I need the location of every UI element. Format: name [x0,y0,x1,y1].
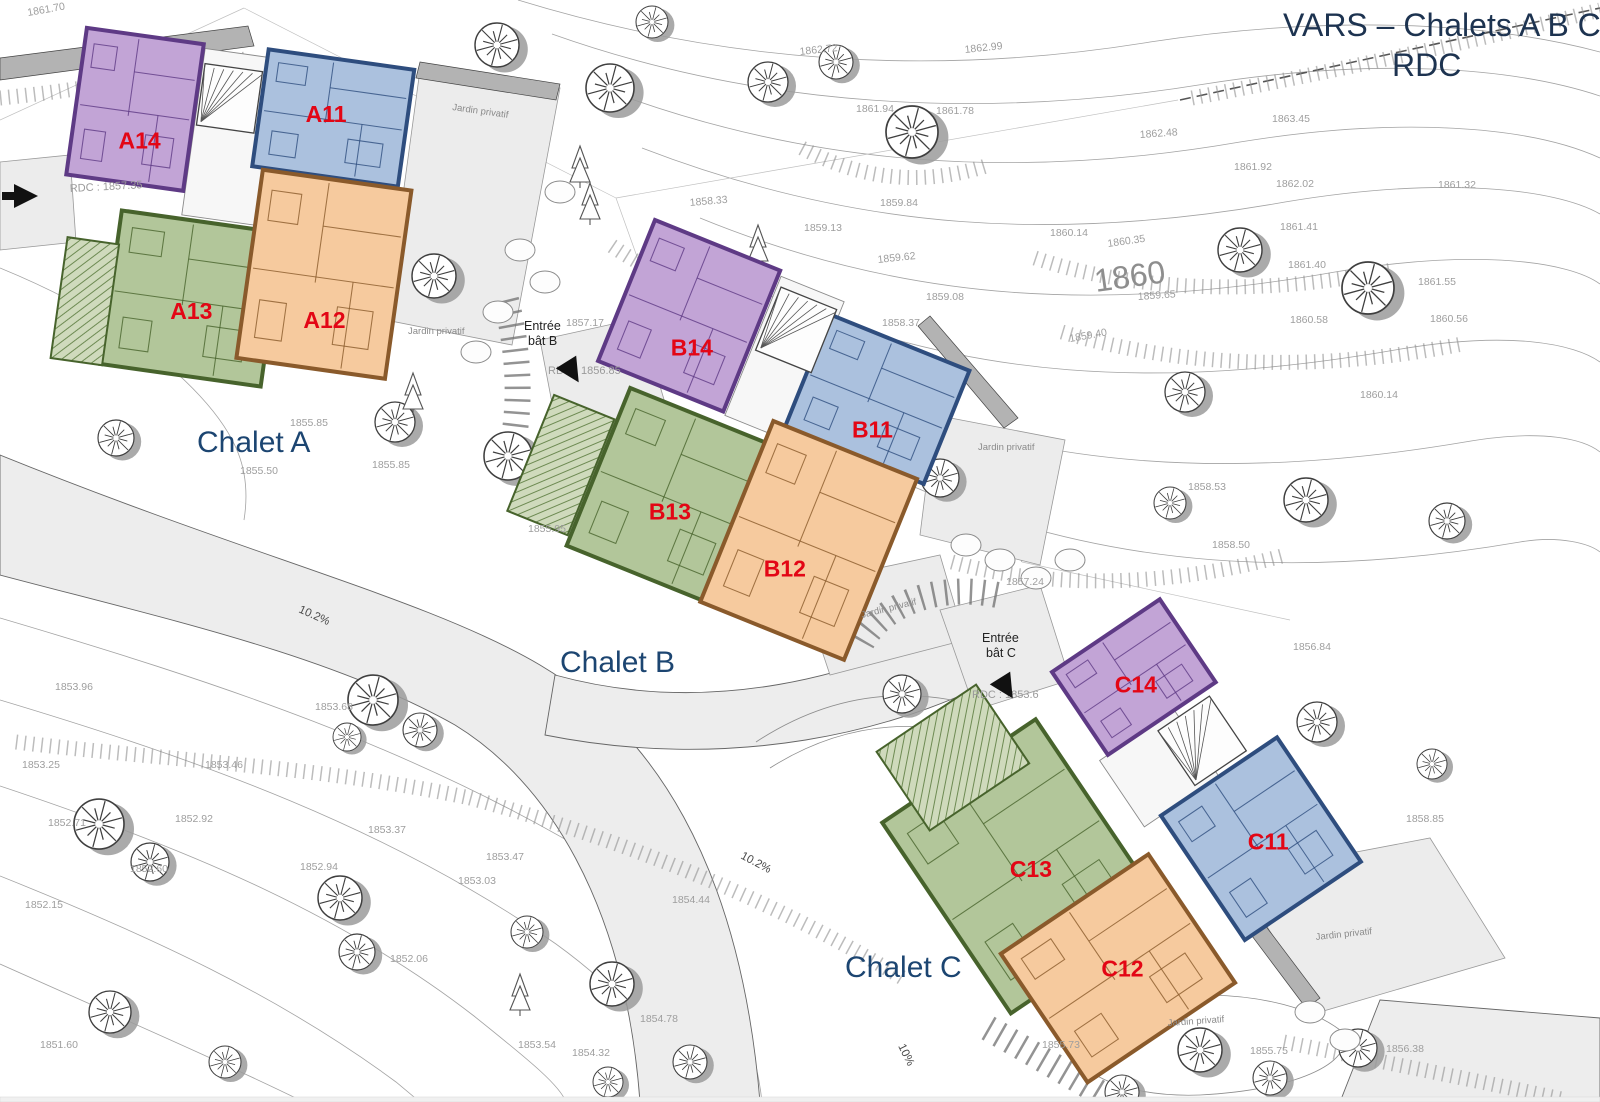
entrance-b-label-line2: bât B [528,334,557,348]
page-title: VARS – Chalets A B C [1283,7,1600,43]
elevation-label: 1855.75 [1250,1045,1288,1057]
bush-icon [505,239,535,261]
garden-label: Jardin privatif [408,326,465,337]
bush-icon [1330,1029,1360,1051]
slope-label: 10.2% [739,850,773,876]
tree-icon [586,64,644,118]
elevation-label: 1855.85 [372,459,410,471]
tree-icon [339,934,382,975]
tree-icon [511,916,549,952]
bush-icon [530,271,560,293]
elevation-label: 1858.33 [689,194,728,209]
tree-icon [333,723,367,755]
elevation-label: 1851.60 [40,1039,78,1051]
elevation-label: 1853.37 [368,824,406,836]
elevation-label: 1852.92 [175,813,213,825]
unit-label: B12 [764,556,806,582]
elevation-label: 1853.03 [458,875,496,887]
chalet-c-label: Chalet C [845,951,962,984]
elevation-label: 1856.84 [1293,641,1331,653]
rdc-elevation-label: RDC : 1857.35 [70,179,143,195]
elevation-label: 1859.08 [926,291,964,303]
elevation-label: 1853.46 [205,759,243,771]
unit-label: C14 [1115,672,1157,698]
elevation-label: 1861.41 [1280,221,1318,233]
elevation-label: 1862.99 [964,40,1003,56]
elevation-label: 1863.45 [1272,113,1310,125]
elevation-label: 1861.70 [26,1,66,19]
page-bottom-edge [0,1097,1600,1102]
tree-icon [636,6,674,42]
tree-icon [1154,487,1192,523]
elevation-label: 1861.32 [1438,179,1476,191]
tree-icon [89,991,139,1038]
bush-icon [1055,549,1085,571]
elevation-label: 1854.44 [672,894,710,906]
pine-tree-icon [580,183,600,225]
entrance-b-label-line1: Entrée [524,319,561,333]
elevation-label: 1853.54 [518,1039,556,1051]
slope-label: 10% [895,1042,916,1068]
bush-icon [461,341,491,363]
elevation-label: 1859.84 [880,197,918,209]
elevation-label: 1861.92 [1234,161,1272,173]
bush-icon [545,181,575,203]
elevation-label: 1860.58 [1290,314,1328,326]
elevation-label: 1852.60 [130,863,168,875]
unit-label: A13 [170,298,212,324]
elevation-label: 1854.78 [640,1013,678,1025]
unit-label: B14 [671,335,713,361]
elevation-label: 1856.38 [1386,1043,1424,1055]
tree-icon [1342,262,1404,321]
elevation-label: 1853.47 [486,851,524,863]
tree-icon [403,713,444,751]
elevation-label: 1853.68 [315,701,353,713]
tree-icon [1253,1061,1294,1099]
pine-tree-icon [570,146,590,188]
bush-icon [985,549,1015,571]
elevation-label: 1860.14 [1050,227,1088,239]
stair-icon [196,64,262,133]
tree-icon [1284,478,1337,528]
tree-icon [209,1046,247,1082]
tree-icon [1297,702,1345,747]
elevation-label: 1860.35 [1107,233,1146,250]
elevation-label: 1857.24 [1006,576,1044,588]
elevation-label: 1858.50 [1212,539,1250,551]
unit-label: B11 [852,416,893,442]
bush-icon [951,534,981,556]
elevation-label: 1860.14 [1360,389,1398,401]
tree-icon [318,876,371,926]
unit-label: C13 [1010,856,1052,882]
tree-icon [593,1067,629,1101]
elevation-label: 1862.02 [1276,178,1314,190]
elevation-label: 1854.32 [572,1047,610,1059]
garden-label: Jardin privatif [978,442,1035,453]
elevation-label: 1858.53 [1188,481,1226,493]
elevation-label: 1852.15 [25,899,63,911]
tree-icon [748,62,796,107]
elevation-label: 1859.13 [804,222,842,234]
elevation-label: 1859.62 [877,250,916,266]
unit-label: A14 [119,127,161,153]
elevation-label: 1861.78 [936,105,974,117]
elevation-label: 1852.94 [300,861,338,873]
elevation-label: 1852.71 [48,817,86,829]
tree-icon [98,420,141,461]
page-subtitle: RDC [1392,47,1461,83]
bush-icon [1295,1001,1325,1023]
tree-icon [1178,1028,1231,1078]
tree-icon [475,23,528,73]
unit-label: B13 [649,498,691,524]
entrance-c-label-line2: bât C [986,646,1016,660]
pine-tree-icon [403,373,423,415]
elevation-label: 1861.40 [1288,259,1326,271]
elevation-label: 1855.95 [528,523,566,535]
elevation-label: 1858.85 [1406,813,1444,825]
elevation-label: 1860.56 [1430,313,1468,325]
chalet-building: A14A11A13A12 [41,24,428,405]
site-plan-drawing: A14A11A13A12B14B11B13B12C14C11C13C12 186… [0,0,1600,1102]
unit-label: A12 [303,307,345,333]
elevation-label: 1853.25 [22,759,60,771]
elevation-label: 1853.96 [55,681,93,693]
unit-label: C11 [1248,828,1289,854]
elevation-label: 1862.48 [1139,126,1178,141]
apartment-unit: A14 [66,28,203,191]
tree-icon [1429,503,1472,544]
apartment-unit: A11 [252,49,414,186]
elevation-label: 1859.40 [1068,327,1108,345]
elevation-label: 1858.37 [882,317,920,329]
tree-icon [1218,228,1271,278]
chalet-b-label: Chalet B [560,646,675,679]
elevation-label: 1855.50 [240,465,278,477]
elevation-label: 1855.73 [1042,1039,1080,1051]
unit-label: C12 [1101,956,1143,982]
elevation-label: 1857.17 [566,317,604,329]
unit-label: A11 [306,101,347,127]
tree-icon [1417,749,1453,783]
apartment-unit: A12 [236,170,411,379]
chalet-a-label: Chalet A [197,426,310,459]
elevation-label: 1861.94 [856,103,894,115]
site-plan-page: A14A11A13A12B14B11B13B12C14C11C13C12 186… [0,0,1600,1102]
tree-icon [1165,372,1213,417]
elevation-label: 1852.06 [390,953,428,965]
pine-tree-icon [510,974,530,1016]
entrance-c-label-line1: Entrée [982,631,1019,645]
elevation-label: 1861.55 [1418,276,1456,288]
bush-icon [483,301,513,323]
